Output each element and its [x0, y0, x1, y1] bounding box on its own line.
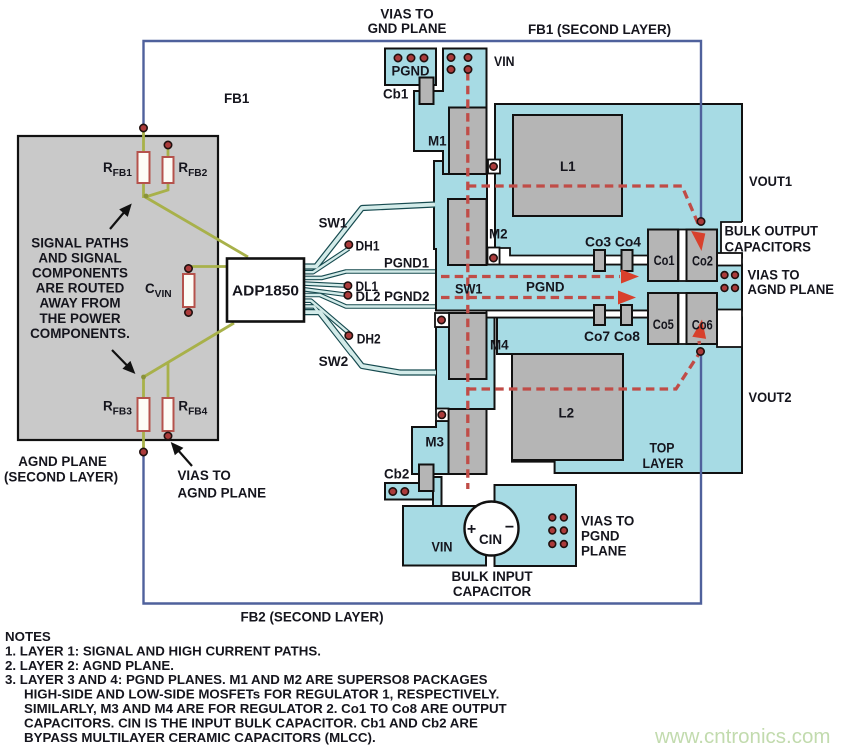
svg-text:SW1: SW1 — [319, 216, 348, 231]
svg-text:HIGH-SIDE AND LOW-SIDE MOSFETs: HIGH-SIDE AND LOW-SIDE MOSFETs FOR REGUL… — [24, 687, 499, 702]
svg-text:3. LAYER 3 AND 4: PGND PLANES.: 3. LAYER 3 AND 4: PGND PLANES. M1 AND M2… — [5, 672, 488, 687]
svg-text:SIMILARLY, M3 AND M4 ARE FOR R: SIMILARLY, M3 AND M4 ARE FOR REGULATOR 2… — [24, 701, 507, 716]
svg-text:DH2: DH2 — [357, 332, 381, 347]
svg-text:VIN: VIN — [494, 54, 515, 69]
svg-text:AGND PLANE: AGND PLANE — [178, 486, 267, 501]
svg-text:Co6: Co6 — [692, 318, 713, 333]
svg-text:BULK INPUT: BULK INPUT — [451, 569, 533, 584]
svg-text:GND PLANE: GND PLANE — [368, 21, 447, 36]
svg-text:Cb2: Cb2 — [384, 467, 409, 482]
svg-text:VIAS TO: VIAS TO — [581, 514, 634, 529]
svg-text:PGND: PGND — [392, 64, 430, 79]
svg-text:CIN: CIN — [479, 532, 502, 547]
svg-text:SIGNAL PATHS: SIGNAL PATHS — [31, 235, 129, 250]
svg-text:AGND PLANE: AGND PLANE — [748, 282, 835, 297]
svg-text:VIAS TO: VIAS TO — [748, 268, 800, 283]
svg-text:M4: M4 — [490, 337, 509, 352]
svg-text:www.cntronics.com: www.cntronics.com — [654, 725, 830, 748]
svg-text:BYPASS MULTILAYER CERAMIC CAPA: BYPASS MULTILAYER CERAMIC CAPACITORS (ML… — [24, 730, 376, 745]
svg-text:NOTES: NOTES — [5, 629, 51, 644]
svg-text:Co3 Co4: Co3 Co4 — [585, 235, 642, 250]
svg-text:LAYER: LAYER — [643, 456, 684, 471]
svg-text:CAPACITORS. CIN IS THE INPUT B: CAPACITORS. CIN IS THE INPUT BULK CAPACI… — [24, 715, 478, 730]
svg-text:CAPACITORS: CAPACITORS — [725, 240, 812, 255]
svg-text:(SECOND LAYER): (SECOND LAYER) — [4, 470, 118, 485]
svg-text:Co2: Co2 — [692, 254, 713, 269]
svg-text:PGND: PGND — [526, 280, 565, 295]
svg-text:VOUT1: VOUT1 — [749, 174, 793, 189]
svg-text:FB2 (SECOND LAYER): FB2 (SECOND LAYER) — [240, 610, 383, 625]
svg-text:Co7 Co8: Co7 Co8 — [584, 329, 641, 344]
svg-text:ADP1850: ADP1850 — [232, 283, 299, 300]
svg-text:BULK OUTPUT: BULK OUTPUT — [725, 224, 819, 239]
svg-text:PGND: PGND — [581, 529, 620, 544]
svg-text:M2: M2 — [489, 227, 508, 242]
svg-text:FB1 (SECOND LAYER): FB1 (SECOND LAYER) — [528, 22, 671, 37]
svg-text:1. LAYER 1: SIGNAL AND HIGH CU: 1. LAYER 1: SIGNAL AND HIGH CURRENT PATH… — [5, 643, 321, 658]
svg-text:+: + — [467, 521, 476, 538]
svg-text:VIN: VIN — [432, 540, 453, 555]
svg-text:2. LAYER 2: AGND PLANE.: 2. LAYER 2: AGND PLANE. — [5, 658, 174, 673]
svg-text:VIAS TO: VIAS TO — [178, 468, 231, 483]
svg-text:TOP: TOP — [650, 441, 675, 456]
svg-text:AGND PLANE: AGND PLANE — [18, 454, 107, 469]
svg-text:PLANE: PLANE — [581, 544, 626, 559]
svg-text:ARE ROUTED: ARE ROUTED — [36, 281, 125, 296]
svg-text:SW2: SW2 — [319, 354, 349, 369]
svg-text:VIAS TO: VIAS TO — [380, 7, 433, 22]
svg-text:L1: L1 — [560, 159, 576, 174]
svg-text:DL2 PGND2: DL2 PGND2 — [356, 289, 430, 304]
svg-text:DH1: DH1 — [356, 239, 380, 254]
svg-text:PGND1: PGND1 — [384, 255, 430, 270]
svg-text:AWAY FROM: AWAY FROM — [39, 296, 120, 311]
svg-text:COMPONENTS.: COMPONENTS. — [30, 326, 130, 341]
svg-text:Cb1: Cb1 — [383, 87, 409, 102]
svg-text:THE POWER: THE POWER — [39, 311, 120, 326]
svg-text:VOUT2: VOUT2 — [749, 390, 792, 405]
svg-text:Co1: Co1 — [654, 253, 675, 268]
svg-text:−: − — [505, 519, 514, 536]
svg-text:SW1: SW1 — [455, 282, 483, 297]
svg-text:M1: M1 — [428, 134, 447, 149]
svg-text:AND SIGNAL: AND SIGNAL — [38, 250, 121, 265]
svg-text:M3: M3 — [425, 435, 444, 450]
svg-text:Co5: Co5 — [653, 317, 674, 332]
svg-text:COMPONENTS: COMPONENTS — [32, 266, 128, 281]
svg-text:L2: L2 — [559, 406, 575, 421]
svg-text:FB1: FB1 — [224, 91, 250, 106]
svg-text:CAPACITOR: CAPACITOR — [453, 584, 532, 599]
